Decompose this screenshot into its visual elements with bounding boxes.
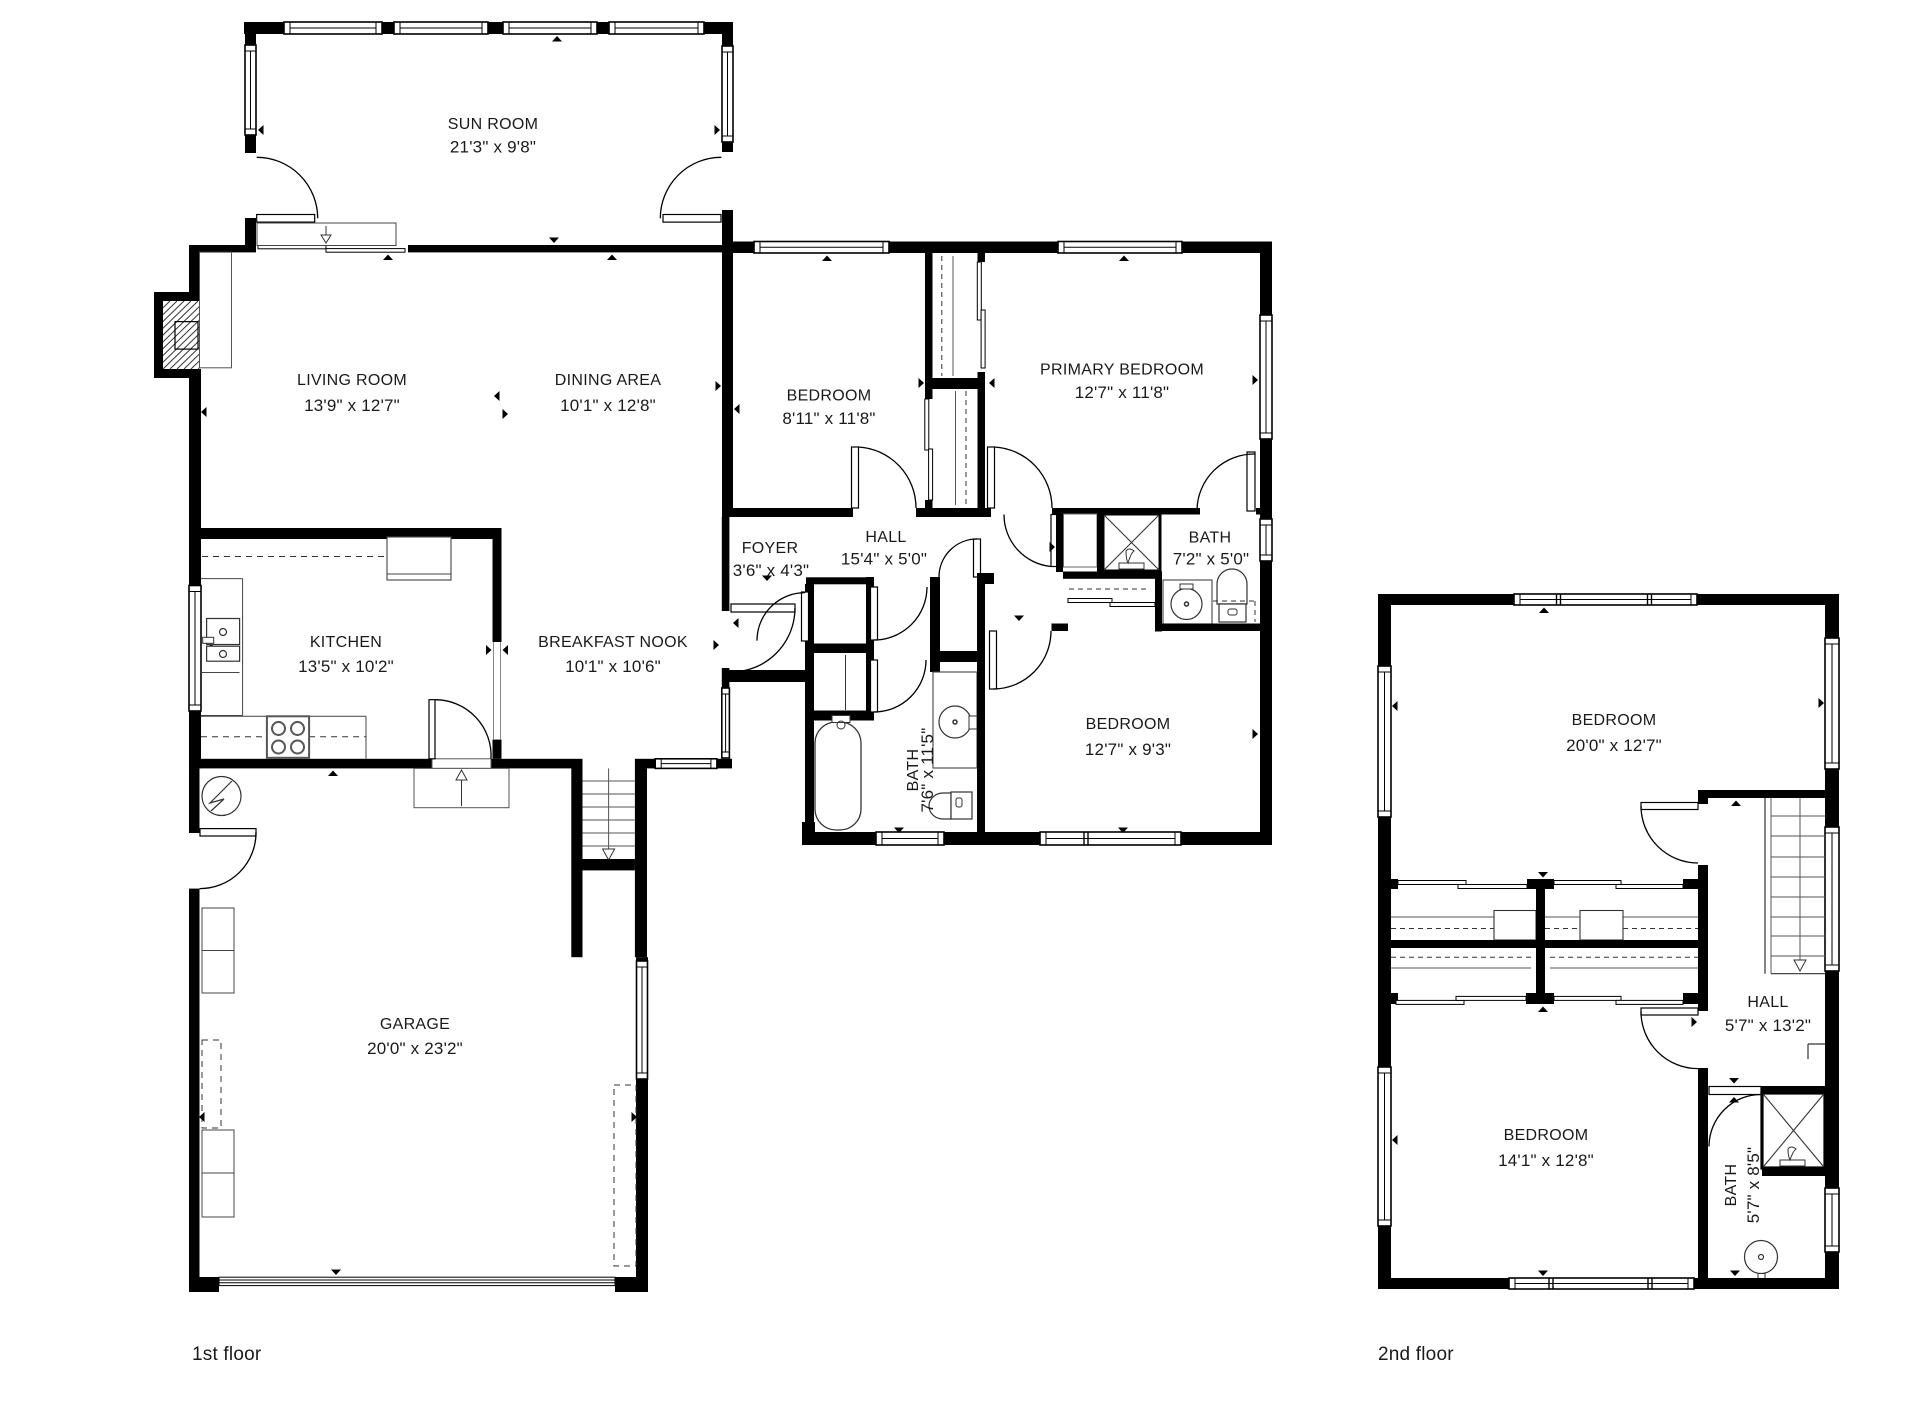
- svg-text:20'0" x 12'7": 20'0" x 12'7": [1566, 736, 1662, 755]
- svg-text:12'7" x 9'3": 12'7" x 9'3": [1085, 740, 1171, 759]
- svg-text:BEDROOM: BEDROOM: [1572, 712, 1657, 729]
- svg-text:13'9" x 12'7": 13'9" x 12'7": [304, 396, 400, 415]
- svg-text:14'1" x 12'8": 14'1" x 12'8": [1498, 1151, 1594, 1170]
- svg-text:7'2" x 5'0": 7'2" x 5'0": [1173, 550, 1250, 569]
- svg-text:5'7" x 13'2": 5'7" x 13'2": [1725, 1016, 1811, 1035]
- svg-text:10'1" x 12'8": 10'1" x 12'8": [560, 396, 656, 415]
- svg-text:LIVING ROOM: LIVING ROOM: [297, 372, 407, 389]
- svg-text:SUN ROOM: SUN ROOM: [448, 116, 538, 133]
- svg-text:12'7" x 11'8": 12'7" x 11'8": [1075, 383, 1170, 402]
- svg-text:5'7" x 8'5": 5'7" x 8'5": [1744, 1147, 1763, 1224]
- svg-text:BREAKFAST NOOK: BREAKFAST NOOK: [538, 634, 688, 651]
- svg-text:KITCHEN: KITCHEN: [310, 634, 382, 651]
- svg-text:10'1" x 10'6": 10'1" x 10'6": [565, 657, 661, 676]
- svg-text:HALL: HALL: [1747, 994, 1788, 1011]
- svg-text:DINING AREA: DINING AREA: [555, 372, 661, 389]
- svg-text:BEDROOM: BEDROOM: [1504, 1127, 1589, 1144]
- svg-text:GARAGE: GARAGE: [380, 1016, 450, 1033]
- svg-text:7'6" x 11'5": 7'6" x 11'5": [918, 728, 937, 813]
- svg-text:HALL: HALL: [865, 529, 906, 546]
- svg-text:1st floor: 1st floor: [192, 1344, 262, 1365]
- svg-text:2nd floor: 2nd floor: [1378, 1344, 1454, 1365]
- svg-text:20'0" x 23'2": 20'0" x 23'2": [367, 1039, 463, 1058]
- svg-text:BATH: BATH: [1723, 1164, 1740, 1207]
- svg-text:BATH: BATH: [1189, 530, 1232, 547]
- svg-text:PRIMARY BEDROOM: PRIMARY BEDROOM: [1040, 362, 1204, 379]
- svg-text:BEDROOM: BEDROOM: [1086, 716, 1171, 733]
- svg-text:21'3" x 9'8": 21'3" x 9'8": [450, 138, 536, 157]
- svg-text:8'11" x 11'8": 8'11" x 11'8": [782, 409, 875, 428]
- svg-text:BEDROOM: BEDROOM: [787, 388, 872, 405]
- svg-text:FOYER: FOYER: [742, 540, 799, 557]
- svg-text:13'5" x 10'2": 13'5" x 10'2": [298, 657, 394, 676]
- svg-text:15'4" x 5'0": 15'4" x 5'0": [841, 550, 927, 569]
- svg-text:3'6" x 4'3": 3'6" x 4'3": [733, 561, 810, 580]
